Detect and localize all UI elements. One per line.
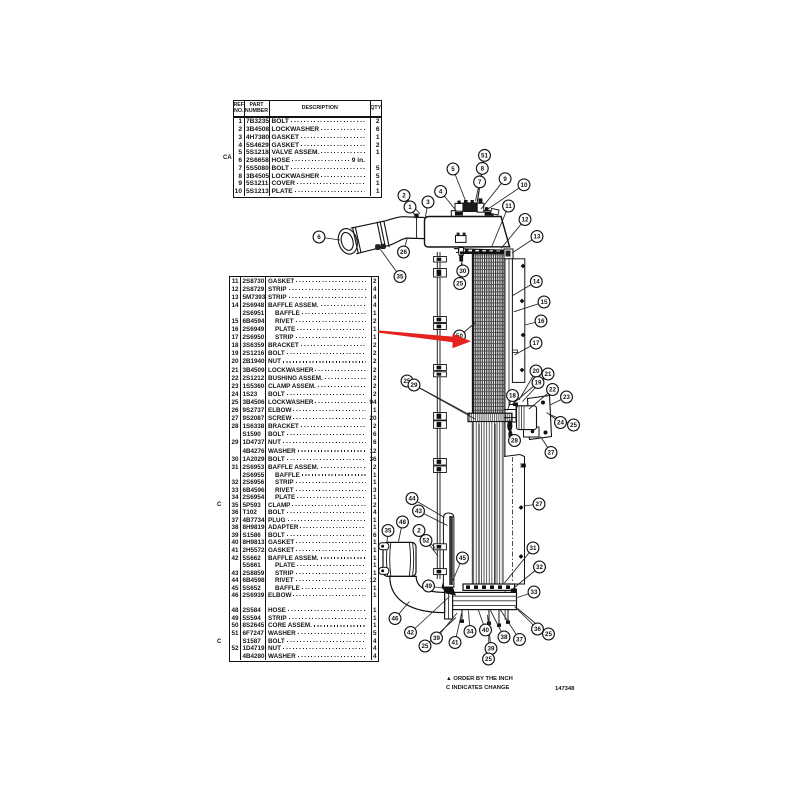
svg-text:23: 23	[563, 394, 570, 401]
svg-text:28: 28	[511, 438, 518, 445]
svg-text:25: 25	[456, 281, 463, 288]
svg-text:46: 46	[392, 616, 399, 623]
svg-text:39: 39	[488, 646, 495, 653]
svg-text:1: 1	[408, 204, 412, 211]
svg-text:26: 26	[400, 249, 407, 256]
svg-text:27: 27	[536, 501, 543, 508]
svg-text:49: 49	[425, 583, 432, 590]
svg-text:3: 3	[426, 199, 430, 206]
svg-text:11: 11	[505, 203, 512, 210]
svg-text:2: 2	[417, 528, 421, 535]
svg-text:27: 27	[548, 450, 555, 457]
svg-text:33: 33	[531, 589, 538, 596]
svg-text:14: 14	[533, 279, 540, 286]
svg-text:25: 25	[422, 643, 429, 650]
svg-text:6: 6	[317, 234, 321, 241]
svg-text:19: 19	[535, 380, 542, 387]
svg-text:41: 41	[452, 640, 459, 647]
svg-text:10: 10	[521, 182, 528, 189]
svg-text:9: 9	[503, 176, 507, 183]
svg-text:8: 8	[481, 166, 485, 173]
svg-text:13: 13	[534, 234, 541, 241]
svg-text:32: 32	[536, 564, 543, 571]
svg-text:21: 21	[545, 371, 552, 378]
svg-text:51: 51	[481, 153, 488, 160]
svg-text:45: 45	[459, 555, 466, 562]
svg-text:31: 31	[530, 545, 537, 552]
svg-text:2: 2	[402, 193, 406, 200]
svg-text:34: 34	[467, 629, 474, 636]
svg-text:25: 25	[545, 631, 552, 638]
svg-text:36: 36	[534, 626, 541, 633]
svg-text:43: 43	[415, 508, 422, 515]
svg-text:38: 38	[501, 634, 508, 641]
svg-text:35: 35	[397, 274, 404, 281]
svg-text:22: 22	[549, 387, 556, 394]
svg-text:29: 29	[411, 382, 418, 389]
svg-text:15: 15	[541, 299, 548, 306]
svg-text:37: 37	[516, 637, 523, 644]
svg-text:30: 30	[459, 268, 466, 275]
svg-text:35: 35	[385, 528, 392, 535]
svg-text:39: 39	[433, 635, 440, 642]
svg-text:5: 5	[451, 166, 455, 173]
svg-text:44: 44	[409, 496, 416, 503]
svg-text:4: 4	[439, 189, 443, 196]
svg-text:17: 17	[533, 340, 540, 347]
svg-text:24: 24	[557, 420, 564, 427]
svg-text:42: 42	[407, 630, 414, 637]
svg-text:18: 18	[509, 393, 516, 400]
svg-text:20: 20	[533, 368, 540, 375]
svg-text:7: 7	[478, 179, 482, 186]
svg-text:25: 25	[485, 656, 492, 663]
svg-text:12: 12	[522, 217, 529, 224]
svg-text:40: 40	[482, 627, 489, 634]
svg-text:16: 16	[538, 318, 545, 325]
svg-text:25: 25	[570, 422, 577, 429]
svg-text:52: 52	[423, 538, 430, 545]
svg-text:48: 48	[399, 519, 406, 526]
